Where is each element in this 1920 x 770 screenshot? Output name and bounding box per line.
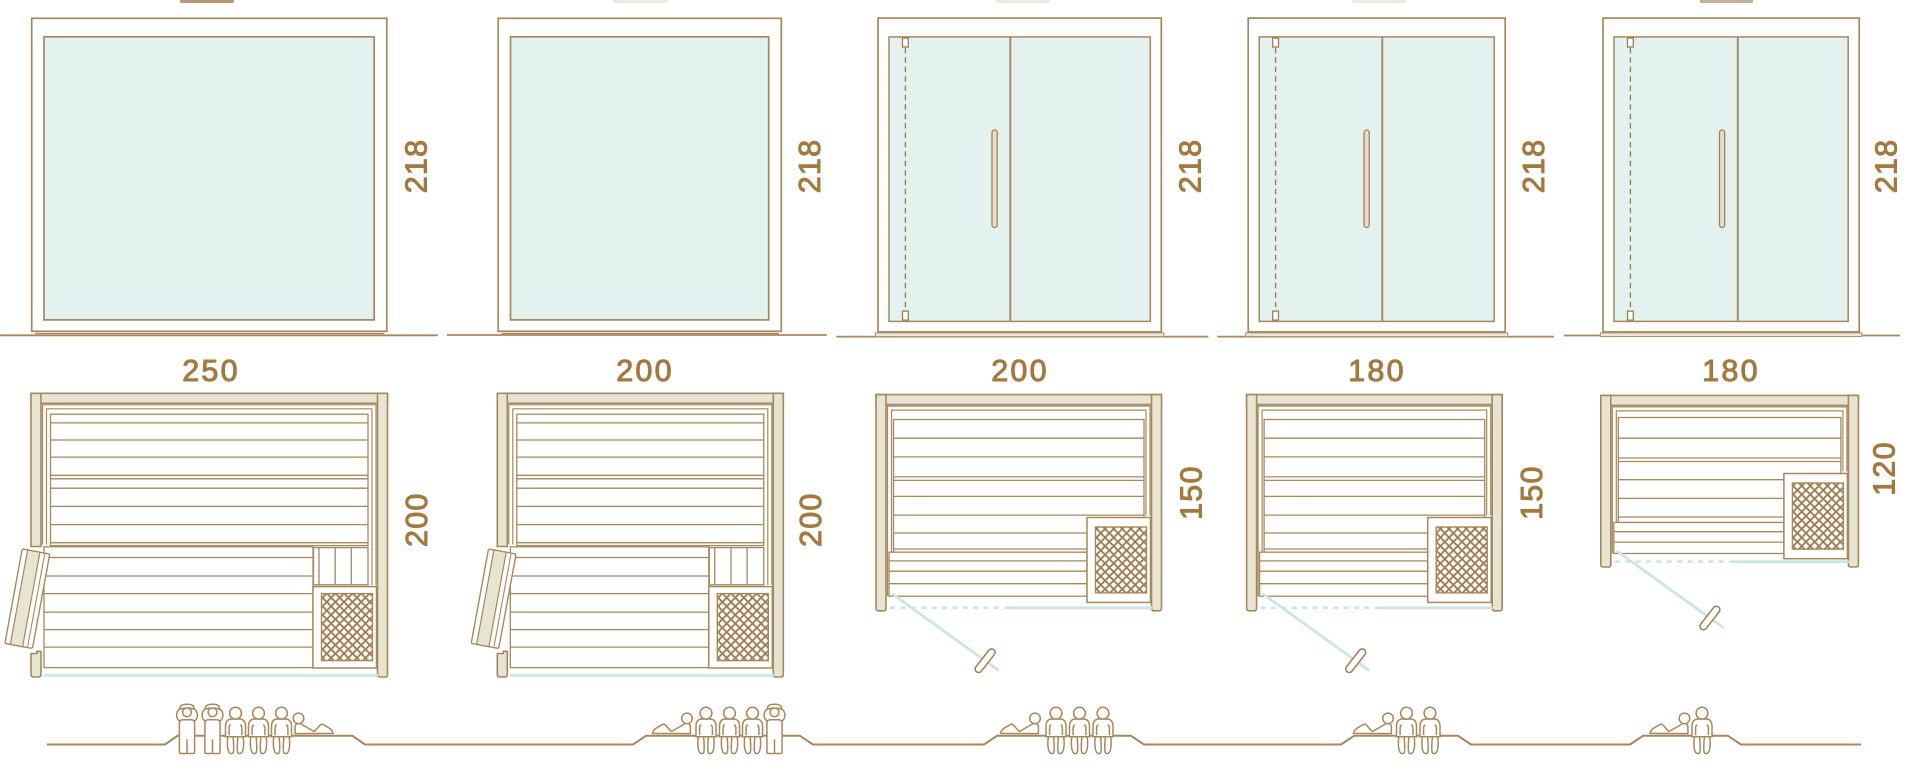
svg-text:180: 180 xyxy=(1348,354,1406,388)
svg-text:150: 150 xyxy=(1174,465,1208,519)
svg-text:200: 200 xyxy=(794,492,828,547)
svg-text:180: 180 xyxy=(1702,354,1760,388)
svg-text:218: 218 xyxy=(400,139,434,194)
svg-text:150: 150 xyxy=(1515,465,1549,519)
svg-text:200: 200 xyxy=(400,492,434,547)
svg-text:218: 218 xyxy=(1517,139,1551,194)
svg-text:218: 218 xyxy=(1869,139,1903,194)
svg-text:200: 200 xyxy=(616,354,674,388)
svg-text:218: 218 xyxy=(793,139,827,194)
svg-text:120: 120 xyxy=(1868,441,1902,496)
svg-text:218: 218 xyxy=(1174,139,1208,194)
svg-text:200: 200 xyxy=(991,354,1049,388)
svg-text:250: 250 xyxy=(182,354,240,388)
